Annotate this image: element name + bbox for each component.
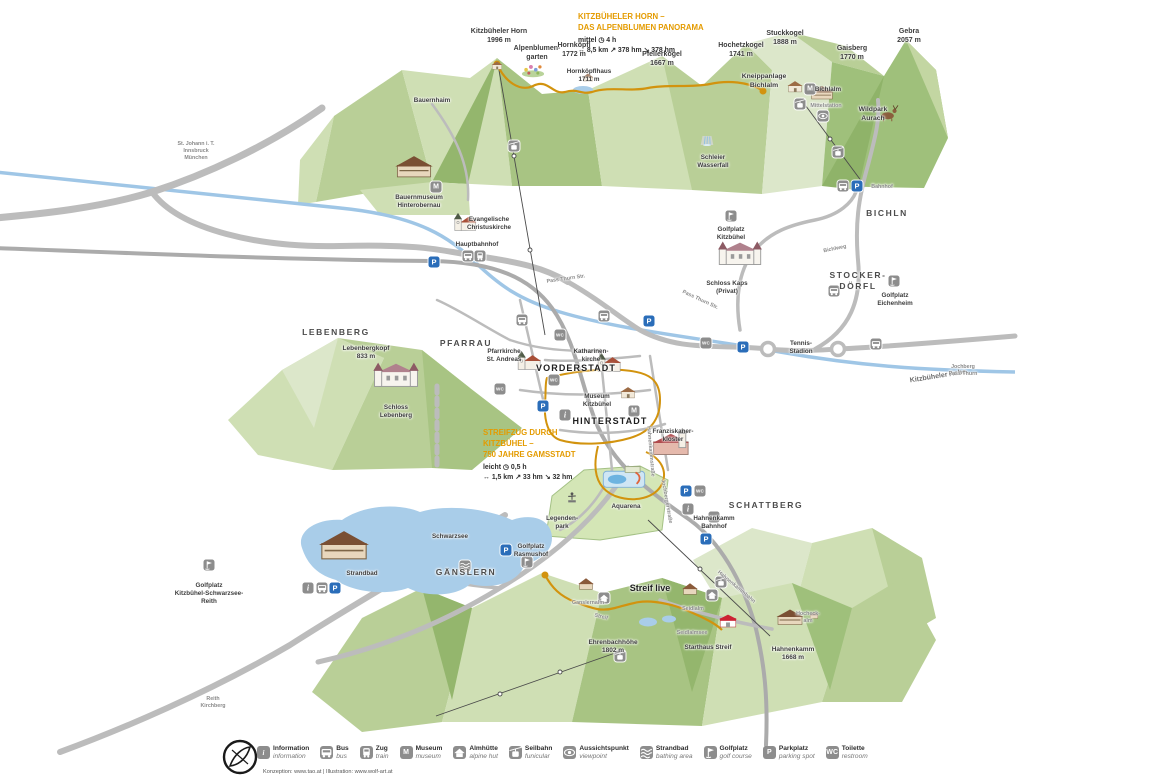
legend-item-viewpoint: Aussichtspunktviewpoint — [563, 745, 628, 761]
distance-icon: ↔ — [578, 47, 585, 54]
credits-line: Konzeption: www.tao.at | Illustration: w… — [263, 769, 393, 775]
terrain-lebenberg — [228, 338, 522, 470]
descent-icon: ↘ — [545, 474, 551, 481]
legend-item-museum: MMuseummuseum — [400, 745, 443, 761]
ascent-icon: ↗ — [610, 47, 616, 54]
route-stats: mittel ◷ 4 h ↔ 8,5 km ↗ 378 hm ↘ 378 hm — [578, 36, 704, 57]
route-time: 0,5 h — [511, 464, 527, 471]
legend-label-de: Museum — [416, 745, 443, 753]
ascent-icon: ↗ — [515, 474, 521, 481]
legend-item-restroom: WCToiletterestroom — [826, 745, 868, 761]
legend-label-de: Toilette — [842, 745, 868, 753]
i-icon: i — [257, 746, 270, 759]
route-distance: 8,5 km — [587, 47, 608, 54]
legend-label-en: alpine hut — [469, 753, 498, 761]
pond-seidlalmsee — [639, 618, 657, 627]
legend-label-de: Almhütte — [469, 745, 498, 753]
legend-label-en: museum — [416, 753, 443, 761]
legend-item-bus: Busbus — [320, 745, 348, 761]
train-icon — [360, 746, 373, 759]
legend-label-en: bus — [336, 753, 348, 761]
route-ascent: 378 hm — [618, 47, 642, 54]
duration-icon: ◷ — [598, 37, 604, 44]
parking-icon: P — [763, 746, 776, 759]
legend-item-alpine-hut: Almhüttealpine hut — [453, 745, 498, 761]
route-stats: leicht ◷ 0,5 h ↔ 1,5 km ↗ 33 hm ↘ 32 hm — [483, 463, 576, 484]
terrain-north-ridge — [298, 32, 948, 215]
hut-icon — [453, 746, 466, 759]
distance-icon: ↔ — [483, 474, 490, 481]
route-info-horn-panorama: KITZBÜHELER HORN – DAS ALPENBLUMEN PANOR… — [578, 12, 704, 57]
legend-item-bathing-area: Strandbadbathing area — [640, 745, 693, 761]
pond-seidlalmsee — [662, 616, 676, 623]
legend-item-funicular: Seilbahnfunicular — [509, 745, 552, 761]
route-time: 4 h — [606, 37, 616, 44]
legend-label-de: Bus — [336, 745, 348, 753]
legend-label-de: Seilbahn — [525, 745, 552, 753]
bus-icon — [320, 746, 333, 759]
legend-label-de: Strandbad — [656, 745, 693, 753]
legend-label-en: parking spot — [779, 753, 815, 761]
legend-label-en: viewpoint — [579, 753, 628, 761]
legend-label-en: information — [273, 753, 309, 761]
legend-label-en: golf course — [720, 753, 752, 761]
map-legend: iInformationinformationBusbusZugtrainMMu… — [257, 745, 868, 761]
golf-icon — [704, 746, 717, 759]
route-distance: 1,5 km — [492, 474, 513, 481]
route-difficulty: mittel — [578, 37, 596, 44]
legend-label-de: Information — [273, 745, 309, 753]
legend-label-en: restroom — [842, 753, 868, 761]
legend-label-en: bathing area — [656, 753, 693, 761]
route-ascent: 33 hm — [523, 474, 543, 481]
map-base-art — [0, 0, 1170, 780]
descent-icon: ↘ — [644, 47, 650, 54]
legend-item-parking-spot: PParkplatzparking spot — [763, 745, 815, 761]
legend-label-de: Aussichtspunkt — [579, 745, 628, 753]
duration-icon: ◷ — [503, 464, 509, 471]
legend-item-golf-course: Golfplatzgolf course — [704, 745, 752, 761]
route-title: KITZBÜHELER HORN – DAS ALPENBLUMEN PANOR… — [578, 12, 704, 34]
strandbad-icon — [640, 746, 653, 759]
legend-item-train: Zugtrain — [360, 745, 389, 761]
legend-label-de: Golfplatz — [720, 745, 752, 753]
compass-logo — [222, 739, 258, 775]
legend-item-information: iInformationinformation — [257, 745, 309, 761]
roundabout — [832, 343, 845, 356]
route-descent: 378 hm — [651, 47, 675, 54]
toilet-icon: WC — [826, 746, 839, 759]
legend-label-en: funicular — [525, 753, 552, 761]
route-title: STREIFZUG DURCH KITZBÜHEL – 750 JAHRE GA… — [483, 428, 576, 461]
legend-label-de: Parkplatz — [779, 745, 815, 753]
m-icon: M — [400, 746, 413, 759]
kitzbuehel-panorama-map: PPPPPPPPPWCWCWCWCWCWCiiiMMM Kitzbüheler … — [0, 0, 1170, 780]
route-info-streifzug: STREIFZUG DURCH KITZBÜHEL – 750 JAHRE GA… — [483, 428, 576, 483]
viewpoint-icon — [563, 746, 576, 759]
route-difficulty: leicht — [483, 464, 501, 471]
route-descent: 32 hm — [552, 474, 572, 481]
funicular-icon — [509, 746, 522, 759]
roundabout — [762, 343, 775, 356]
legend-label-de: Zug — [376, 745, 389, 753]
legend-label-en: train — [376, 753, 389, 761]
